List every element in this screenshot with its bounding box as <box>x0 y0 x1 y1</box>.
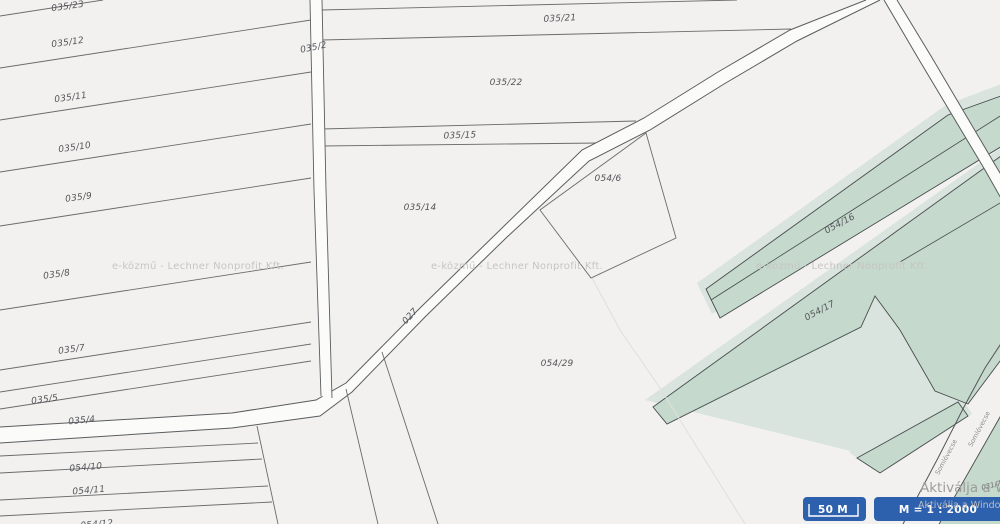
cadastral-map[interactable]: e-közmű - Lechner Nonprofit Kft. e-közmű… <box>0 0 1000 524</box>
ekozmu-watermark-center: e-közmű - Lechner Nonprofit Kft. <box>431 260 603 272</box>
parcel-label-035-21: 035/21 <box>543 13 576 25</box>
scale-distance-label: 50 M <box>818 504 848 516</box>
parcel-label-035-15: 035/15 <box>443 130 476 141</box>
parcel-label-035-22: 035/22 <box>490 78 523 88</box>
parcel-label-054-29: 054/29 <box>541 359 574 369</box>
windows-activation-watermark: Aktiválja a Windows <box>920 480 1000 496</box>
ekozmu-watermark-left: e-közmű - Lechner Nonprofit Kft. <box>112 260 284 272</box>
parcel-label-054-6: 054/6 <box>595 174 622 184</box>
map-viewport[interactable]: e-közmű - Lechner Nonprofit Kft. e-közmű… <box>0 0 1000 524</box>
windows-activation-watermark-2: Aktiválja a Windows <box>918 500 1000 511</box>
parcel-label-035-14: 035/14 <box>404 203 437 213</box>
ekozmu-watermark-right: e-közmű - Lechner Nonprofit Kft. <box>756 260 928 272</box>
